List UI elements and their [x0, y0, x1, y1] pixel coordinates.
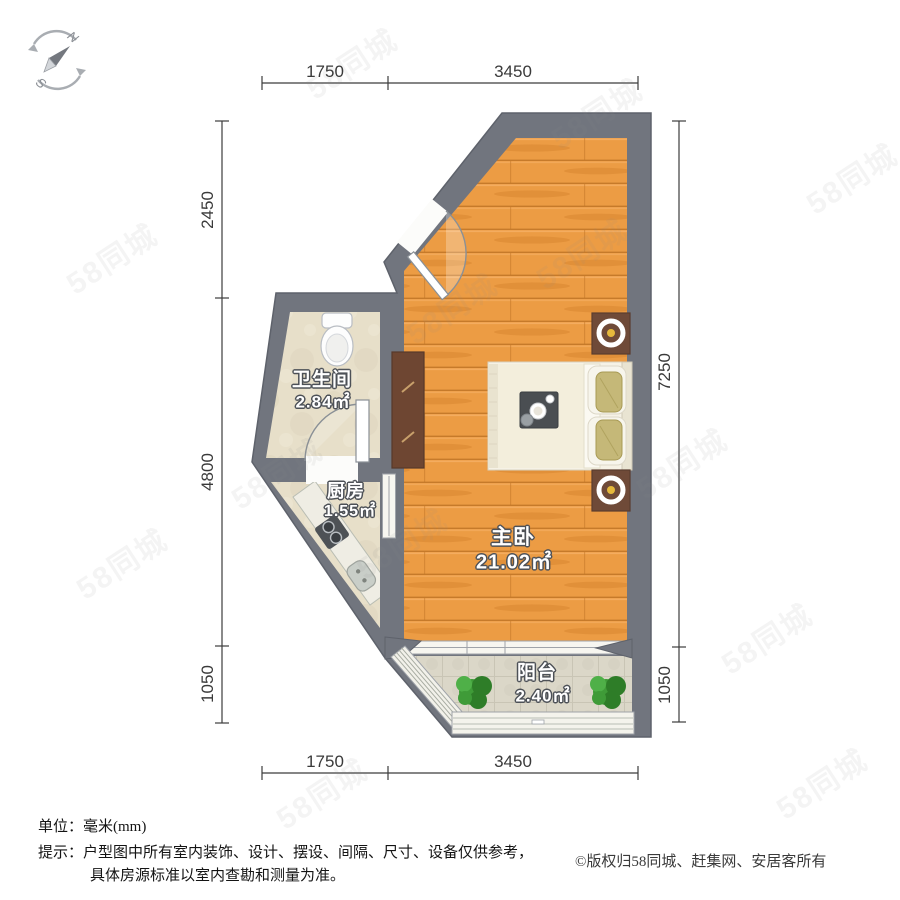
balcony-railing [452, 712, 634, 734]
kitchen-window [383, 474, 396, 538]
floorplan-drawing [0, 0, 900, 900]
compass-icon [28, 31, 86, 89]
bed [488, 362, 632, 470]
nightstand-top [592, 313, 630, 354]
wardrobe [392, 352, 424, 468]
bed-tray [520, 392, 558, 428]
nightstand-bottom [592, 470, 630, 511]
toilet [321, 313, 353, 366]
floorplan-page: 58同城58同城58同城58同城58同城58同城58同城58同城58同城58同城… [0, 0, 900, 900]
